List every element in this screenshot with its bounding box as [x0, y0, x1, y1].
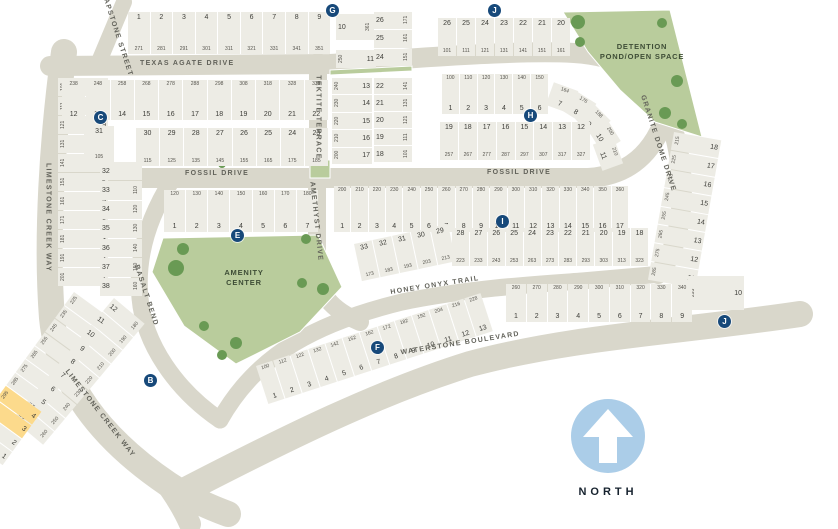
lot-6-addr-321[interactable]: 3216: [241, 12, 263, 54]
lot-number: 13: [362, 83, 370, 90]
lot-number: 34: [102, 206, 110, 213]
lot-22-addr-141[interactable]: 14122: [514, 18, 532, 56]
lot-8-addr-341[interactable]: 3418: [286, 12, 308, 54]
lot-number: 4: [576, 313, 580, 320]
marker-j-top[interactable]: J: [488, 4, 501, 17]
lot-15-addr-220[interactable]: 22015: [332, 113, 372, 129]
lot-number: 30: [417, 231, 426, 239]
lot-address: 238: [69, 82, 77, 87]
lot-9-addr-340[interactable]: 3409: [672, 284, 692, 322]
lot-20-addr-121[interactable]: 12120: [374, 112, 412, 128]
lot-17-addr-360[interactable]: 36017: [612, 186, 628, 232]
lot-address: 181: [61, 236, 66, 243]
lot-number: 6: [283, 223, 287, 230]
north-arrow-icon: [571, 399, 645, 473]
lot-number: 12: [690, 256, 699, 264]
lot-address: 317: [558, 153, 566, 158]
detention-pond-label: DETENTION POND/OPEN SPACE: [592, 42, 692, 62]
lot-number: 16: [167, 111, 175, 118]
lot-1-addr-200[interactable]: 2001: [334, 186, 350, 232]
lot-address: 263: [528, 259, 536, 264]
lot-number: 9: [317, 14, 321, 21]
lot-address: 150: [237, 192, 245, 197]
lot-address: 330: [657, 286, 665, 291]
lot-7-addr-320[interactable]: 3207: [631, 284, 651, 322]
lot-number: 8: [295, 14, 299, 21]
lot-number: 5: [261, 223, 265, 230]
block-northeast-row: 10126111251212413123141221512116120: [438, 18, 570, 56]
lot-38-addr-160[interactable]: 16038: [100, 278, 142, 296]
tree-icon: [297, 278, 307, 288]
lot-19-addr-313[interactable]: 31319: [613, 228, 630, 266]
lot-address: 140: [518, 76, 526, 81]
lot-address: 105: [95, 155, 103, 160]
lot-number: 18: [215, 111, 223, 118]
lot-address: 331: [270, 47, 278, 52]
lot-address: 213: [441, 255, 450, 262]
lot-17-addr-277[interactable]: 27717: [478, 122, 496, 160]
lot-address: 161: [61, 198, 66, 205]
lot-20-addr-303[interactable]: 30320: [595, 228, 612, 266]
lot-14-addr-307[interactable]: 30714: [534, 122, 552, 160]
lot-number: 15: [362, 118, 370, 125]
lot-6-addr-310[interactable]: 3106: [610, 284, 630, 322]
lot-address: 111: [462, 49, 470, 54]
lot-number: 6: [538, 105, 542, 112]
lot-19-addr-111[interactable]: 11119: [374, 129, 412, 145]
lot-number: 15: [521, 124, 529, 131]
tree-icon: [177, 243, 189, 255]
lot-number: 3: [556, 313, 560, 320]
lot-number: 5: [410, 223, 414, 230]
lot-18-addr-101[interactable]: 10118: [374, 146, 412, 162]
lot-number: 8: [659, 313, 663, 320]
marker-g[interactable]: G: [326, 4, 339, 17]
lot-8-addr-330[interactable]: 3308: [651, 284, 671, 322]
lot-address: 350: [598, 188, 606, 193]
lot-number: 4: [30, 412, 37, 420]
lot-number: 2: [159, 14, 163, 21]
lot-address: 111: [404, 134, 409, 141]
lot-14-addr-330[interactable]: 33014: [560, 186, 576, 232]
tree-icon: [217, 350, 227, 360]
lot-address: 265: [31, 351, 39, 360]
tree-icon: [659, 107, 671, 119]
lot-5-addr-311[interactable]: 3115: [218, 12, 240, 54]
lot-address: 140: [215, 192, 223, 197]
lot-number: 1: [137, 14, 141, 21]
lot-address: 120: [170, 192, 178, 197]
lot-number: 21: [582, 230, 590, 237]
lot-number: 9: [680, 313, 684, 320]
lot-address: 151: [404, 54, 409, 61]
marker-e[interactable]: E: [231, 229, 244, 242]
lot-address: 260: [512, 286, 520, 291]
lot-number: 2: [535, 313, 539, 320]
lot-number: 1: [272, 392, 278, 400]
lot-5-addr-140[interactable]: 1405: [513, 74, 530, 114]
lot-19-addr-257[interactable]: 25719: [440, 122, 458, 160]
lot-address: 285: [11, 378, 19, 387]
lot-15-addr-340[interactable]: 34015: [577, 186, 593, 232]
lot-20-addr-318[interactable]: 31820: [256, 80, 279, 120]
lot-2-addr-210[interactable]: 2102: [351, 186, 367, 232]
lot-number: 22: [376, 83, 384, 90]
lot-32[interactable]: 32: [100, 162, 142, 180]
lot-address: 243: [492, 259, 500, 264]
community-site-map: 271128122913301431153216331734183519 361…: [0, 0, 838, 529]
lot-address: 223: [456, 259, 464, 264]
lot-2-addr-110[interactable]: 1102: [460, 74, 477, 114]
lot-26-addr-171[interactable]: 17126: [374, 12, 412, 29]
lot-number: 11: [367, 56, 374, 63]
lot-18-addr-323[interactable]: 32318: [631, 228, 648, 266]
lot-address: 225: [70, 297, 78, 306]
lot-address: 240: [335, 83, 340, 90]
lot-34-addr-120[interactable]: 12034: [100, 201, 142, 219]
lot-1-addr-271[interactable]: 2711: [128, 12, 150, 54]
lot-27-addr-233[interactable]: 23327: [470, 228, 487, 266]
lot-21-addr-293[interactable]: 29321: [577, 228, 594, 266]
lot-address: 230: [390, 188, 398, 193]
lot-address: 360: [616, 188, 624, 193]
lot-22-addr-283[interactable]: 28322: [559, 228, 576, 266]
lot-address: 240: [63, 403, 71, 412]
lot-number: 5: [597, 313, 601, 320]
lot-address: 215: [675, 138, 681, 146]
lot-address: 310: [616, 286, 624, 291]
lot-address: 351: [315, 47, 323, 52]
lot-number: 24: [288, 130, 296, 137]
lot-address: 298: [215, 82, 223, 87]
lot-24-addr-151[interactable]: 15124: [374, 49, 412, 66]
block-h-south-row: 2571926718277172871629715307143171332712: [440, 122, 590, 160]
lot-number: 29: [436, 227, 445, 235]
lot-16-addr-278[interactable]: 27816: [159, 80, 182, 120]
lot-address: 311: [225, 47, 233, 52]
lot-address: 307: [539, 153, 547, 158]
lot-21-addr-328[interactable]: 32821: [280, 80, 303, 120]
lot-number: 7: [639, 313, 643, 320]
lot-number: 24: [481, 20, 489, 27]
lot-number: 12: [461, 330, 471, 339]
lot-9-addr-280[interactable]: 2809: [473, 186, 489, 232]
lot-address: 110: [134, 187, 139, 194]
lot-5-addr-160[interactable]: 1605: [253, 190, 274, 232]
lot-address: 220: [85, 376, 93, 385]
lot-25-addr-161[interactable]: 16125: [374, 30, 412, 47]
lot-address: 233: [474, 259, 482, 264]
tree-icon: [230, 337, 242, 349]
lot-number: 33: [102, 187, 110, 194]
lot-address: 160: [259, 192, 267, 197]
block-central-mid-row: 1153012529135281452715526165251752418523: [136, 128, 328, 166]
lot-4-addr-290[interactable]: 2904: [568, 284, 588, 322]
block-texas-agate-north: 271128122913301431153216331734183519: [128, 12, 330, 54]
lot-11-addr-250[interactable]: 25011: [336, 50, 376, 68]
lot-10-corner: 29510: [688, 276, 744, 310]
lot-12-addr-310[interactable]: 31012: [525, 186, 541, 232]
lot-number: 29: [168, 130, 176, 137]
lot-number: 17: [483, 124, 491, 131]
lot-address: 341: [293, 47, 301, 52]
lot-number: 6: [49, 385, 56, 393]
lot-number: 5: [39, 399, 46, 407]
lot-number: 17: [191, 111, 199, 118]
lot-19-addr-308[interactable]: 30819: [232, 80, 255, 120]
lot-address: 130: [193, 192, 201, 197]
lot-number: 21: [538, 20, 546, 27]
street-label-fossil-right: FOSSIL DRIVE: [487, 169, 551, 176]
lot-4-addr-150[interactable]: 1504: [230, 190, 251, 232]
lot-address: 270: [460, 188, 468, 193]
lot-27-addr-145[interactable]: 14527: [208, 128, 231, 166]
lot-14-addr-230[interactable]: 23014: [332, 95, 372, 111]
lot-address: 271: [135, 47, 143, 52]
lot-number: 22: [564, 230, 572, 237]
lot-13-addr-317[interactable]: 31713: [553, 122, 571, 160]
marker-b[interactable]: B: [144, 374, 157, 387]
lot-address: 141: [61, 160, 66, 167]
lot-number: 20: [600, 230, 608, 237]
lot-address: 318: [264, 82, 272, 87]
lot-3-addr-291[interactable]: 2913: [173, 12, 195, 54]
lot-address: 172: [382, 325, 391, 332]
lot-6-addr-150[interactable]: 1506: [531, 74, 548, 114]
lot-address: 162: [365, 330, 374, 337]
lot-number: 18: [709, 144, 718, 152]
lot-28-addr-223[interactable]: 22328: [452, 228, 469, 266]
lot-5-addr-240[interactable]: 2405: [403, 186, 419, 232]
lot-1-addr-260[interactable]: 2601: [506, 284, 526, 322]
lot-2-addr-281[interactable]: 2812: [151, 12, 173, 54]
lot-number: 5: [227, 14, 231, 21]
lot-18-addr-298[interactable]: 29818: [208, 80, 231, 120]
lot-number: 20: [376, 117, 384, 124]
lot-address: 173: [365, 272, 374, 279]
lot-address: 283: [564, 259, 572, 264]
lot-number: 3: [307, 381, 313, 389]
lot-address: 130: [134, 225, 139, 232]
marker-h[interactable]: H: [524, 109, 537, 122]
block-amenity-north-row: 1201130214031504160517061807: [164, 190, 318, 232]
lot-29-addr-125[interactable]: 12529: [160, 128, 183, 166]
lot-14-addr-258[interactable]: 25814: [111, 80, 134, 120]
lot-address: 308: [239, 82, 247, 87]
lot-address: 210: [610, 147, 618, 157]
lot-25-addr-165[interactable]: 16525: [257, 128, 280, 166]
lot-24-addr-263[interactable]: 26324: [524, 228, 541, 266]
lot-17-addr-200[interactable]: 20017: [332, 148, 372, 164]
lot-address: 285: [652, 268, 658, 276]
lot-4-addr-301[interactable]: 3014: [196, 12, 218, 54]
lot-number: 26: [240, 130, 248, 137]
lot-address: 323: [635, 259, 643, 264]
lot-4-addr-130[interactable]: 1304: [495, 74, 512, 114]
lot-address: 300: [512, 188, 520, 193]
lot-address: 121: [61, 122, 66, 129]
lot-28-addr-135[interactable]: 13528: [184, 128, 207, 166]
lot-number: 23: [546, 230, 554, 237]
lot-address: 320: [546, 188, 554, 193]
lot-number: 1: [340, 223, 344, 230]
lot-address: 203: [422, 259, 431, 266]
lot-number: 7: [272, 14, 276, 21]
tree-icon: [657, 18, 667, 28]
lot-8-addr-270[interactable]: 2708: [456, 186, 472, 232]
lot-address: 204: [434, 308, 443, 315]
lot-address: 228: [469, 296, 478, 303]
lot-number: 25: [510, 230, 518, 237]
lot-23-addr-273[interactable]: 27323: [542, 228, 559, 266]
lot-address: 280: [553, 286, 561, 291]
lot-address: 210: [97, 363, 105, 372]
lot-number: 21: [376, 100, 384, 107]
lot-25-addr-111[interactable]: 11125: [457, 18, 475, 56]
lot-25-addr-253[interactable]: 25325: [506, 228, 523, 266]
lot-number: 10: [734, 290, 742, 297]
lot-address: 253: [510, 259, 518, 264]
lot-address: 176: [578, 96, 588, 105]
lot-address: 122: [296, 353, 305, 360]
lot-number: 2: [10, 439, 17, 447]
lot-1-addr-120[interactable]: 1201: [164, 190, 185, 232]
lot-number: 13: [478, 324, 488, 333]
lot-12-addr-238[interactable]: 23812: [62, 80, 85, 120]
north-arrow: [571, 399, 645, 473]
lot-13-addr-320[interactable]: 32013: [542, 186, 558, 232]
lot-number: 15: [700, 200, 709, 208]
lot-7-addr-331[interactable]: 3317: [263, 12, 285, 54]
lot-23-addr-131[interactable]: 13123: [495, 18, 513, 56]
lot-number: 6: [250, 14, 254, 21]
lot-address: 182: [400, 319, 409, 326]
marker-f[interactable]: F: [371, 341, 384, 354]
lot-address: 328: [288, 82, 296, 87]
lot-4-addr-230[interactable]: 2304: [386, 186, 402, 232]
lot-number: 11: [598, 151, 607, 160]
lot-address: 210: [335, 135, 340, 142]
lot-18-addr-267[interactable]: 26718: [459, 122, 477, 160]
lot-5-addr-300[interactable]: 3005: [589, 284, 609, 322]
lot-number: 23: [500, 20, 508, 27]
lot-number: 27: [474, 230, 482, 237]
lot-address: 225: [672, 156, 678, 164]
lot-2-addr-130[interactable]: 1302: [186, 190, 207, 232]
lot-10-addr-295[interactable]: 29510: [688, 276, 744, 310]
lot-number: 21: [288, 111, 296, 118]
lot-3-addr-220[interactable]: 2203: [369, 186, 385, 232]
lot-number: 28: [192, 130, 200, 137]
marker-i[interactable]: I: [496, 215, 509, 228]
lot-24-addr-175[interactable]: 17524: [281, 128, 304, 166]
lot-11-addr-300[interactable]: 30011: [508, 186, 524, 232]
lot-20-addr-161[interactable]: 16120: [552, 18, 570, 56]
lot-33-addr-110[interactable]: 11033: [100, 181, 142, 199]
lot-15-addr-268[interactable]: 26815: [135, 80, 158, 120]
lot-address: 330: [564, 188, 572, 193]
lot-number: 24: [376, 54, 384, 61]
lot-16-addr-210[interactable]: 21016: [332, 130, 372, 146]
lot-35-addr-130[interactable]: 13035: [100, 220, 142, 238]
lot-21-addr-151[interactable]: 15121: [533, 18, 551, 56]
block-waterstone-east-row: 260127022803290430053106320733083409: [506, 284, 692, 322]
lot-number: 10: [85, 329, 95, 339]
lot-2-addr-270[interactable]: 2702: [527, 284, 547, 322]
lot-number: 25: [462, 20, 470, 27]
lot-address: 142: [330, 341, 339, 348]
lot-26-addr-155[interactable]: 15526: [233, 128, 256, 166]
lot-22-addr-141[interactable]: 14122: [374, 78, 412, 94]
lot-number: 8: [393, 353, 399, 361]
lot-26-addr-101[interactable]: 10126: [438, 18, 456, 56]
marker-j-bottom[interactable]: J: [718, 315, 731, 328]
lot-number: 33: [360, 243, 369, 251]
lot-number: 26: [443, 20, 451, 27]
lot-6-addr-250[interactable]: 2506: [421, 186, 437, 232]
lot-number: 7: [305, 223, 309, 230]
lot-number: 3: [20, 426, 27, 434]
lot-address: 100: [446, 76, 454, 81]
lot-number: 32: [102, 168, 110, 175]
lot-30-addr-115[interactable]: 11530: [136, 128, 159, 166]
lot-10-addr-361[interactable]: 36110: [336, 14, 374, 40]
lot-number: 31: [398, 235, 407, 243]
lot-31-addr-105[interactable]: 10531: [84, 126, 114, 162]
lot-number: 18: [464, 124, 472, 131]
lot-1-addr-100[interactable]: 1001: [442, 74, 459, 114]
block-tektite-east-upper: 171261612515124: [374, 12, 412, 66]
lot-number: 3: [182, 14, 186, 21]
lot-address: 210: [355, 188, 363, 193]
lot-address: 303: [600, 259, 608, 264]
lot-address: 152: [348, 336, 357, 343]
lot-address: 101: [443, 49, 451, 54]
lot-address: 165: [264, 159, 272, 164]
lot-26-addr-243[interactable]: 24326: [488, 228, 505, 266]
lot-address: 131: [500, 49, 508, 54]
lot-3-addr-140[interactable]: 1403: [208, 190, 229, 232]
lot-address: 273: [546, 259, 554, 264]
lot-3-addr-280[interactable]: 2803: [548, 284, 568, 322]
marker-c[interactable]: C: [94, 111, 107, 124]
lot-6-addr-170[interactable]: 1706: [275, 190, 296, 232]
lot-number: 2: [195, 223, 199, 230]
lot-3-addr-120[interactable]: 1203: [478, 74, 495, 114]
lot-24-addr-121[interactable]: 12124: [476, 18, 494, 56]
lot-address: 121: [404, 117, 409, 124]
lot-address: 301: [202, 47, 210, 52]
lot-address: 321: [247, 47, 255, 52]
lot-15-addr-297[interactable]: 29715: [516, 122, 534, 160]
lot-13-addr-240[interactable]: 24013: [332, 78, 372, 94]
lot-21-addr-131[interactable]: 13121: [374, 95, 412, 111]
lot-address: 145: [216, 159, 224, 164]
lot-16-addr-287[interactable]: 28716: [497, 122, 515, 160]
lot-address: 171: [61, 217, 66, 224]
lot-16-addr-350[interactable]: 35016: [594, 186, 610, 232]
lot-address: 200: [338, 188, 346, 193]
lot-12-addr-327[interactable]: 32712: [572, 122, 590, 160]
lot-9-addr-351[interactable]: 3519: [309, 12, 331, 54]
lot-address: 192: [417, 313, 426, 320]
lot-address: 188: [594, 110, 603, 119]
lot-address: 161: [557, 49, 565, 54]
lot-number: 12: [70, 111, 78, 118]
lot-17-addr-288[interactable]: 28817: [183, 80, 206, 120]
lot-address: 310: [529, 188, 537, 193]
lot-36-addr-140[interactable]: 14036: [100, 239, 142, 257]
